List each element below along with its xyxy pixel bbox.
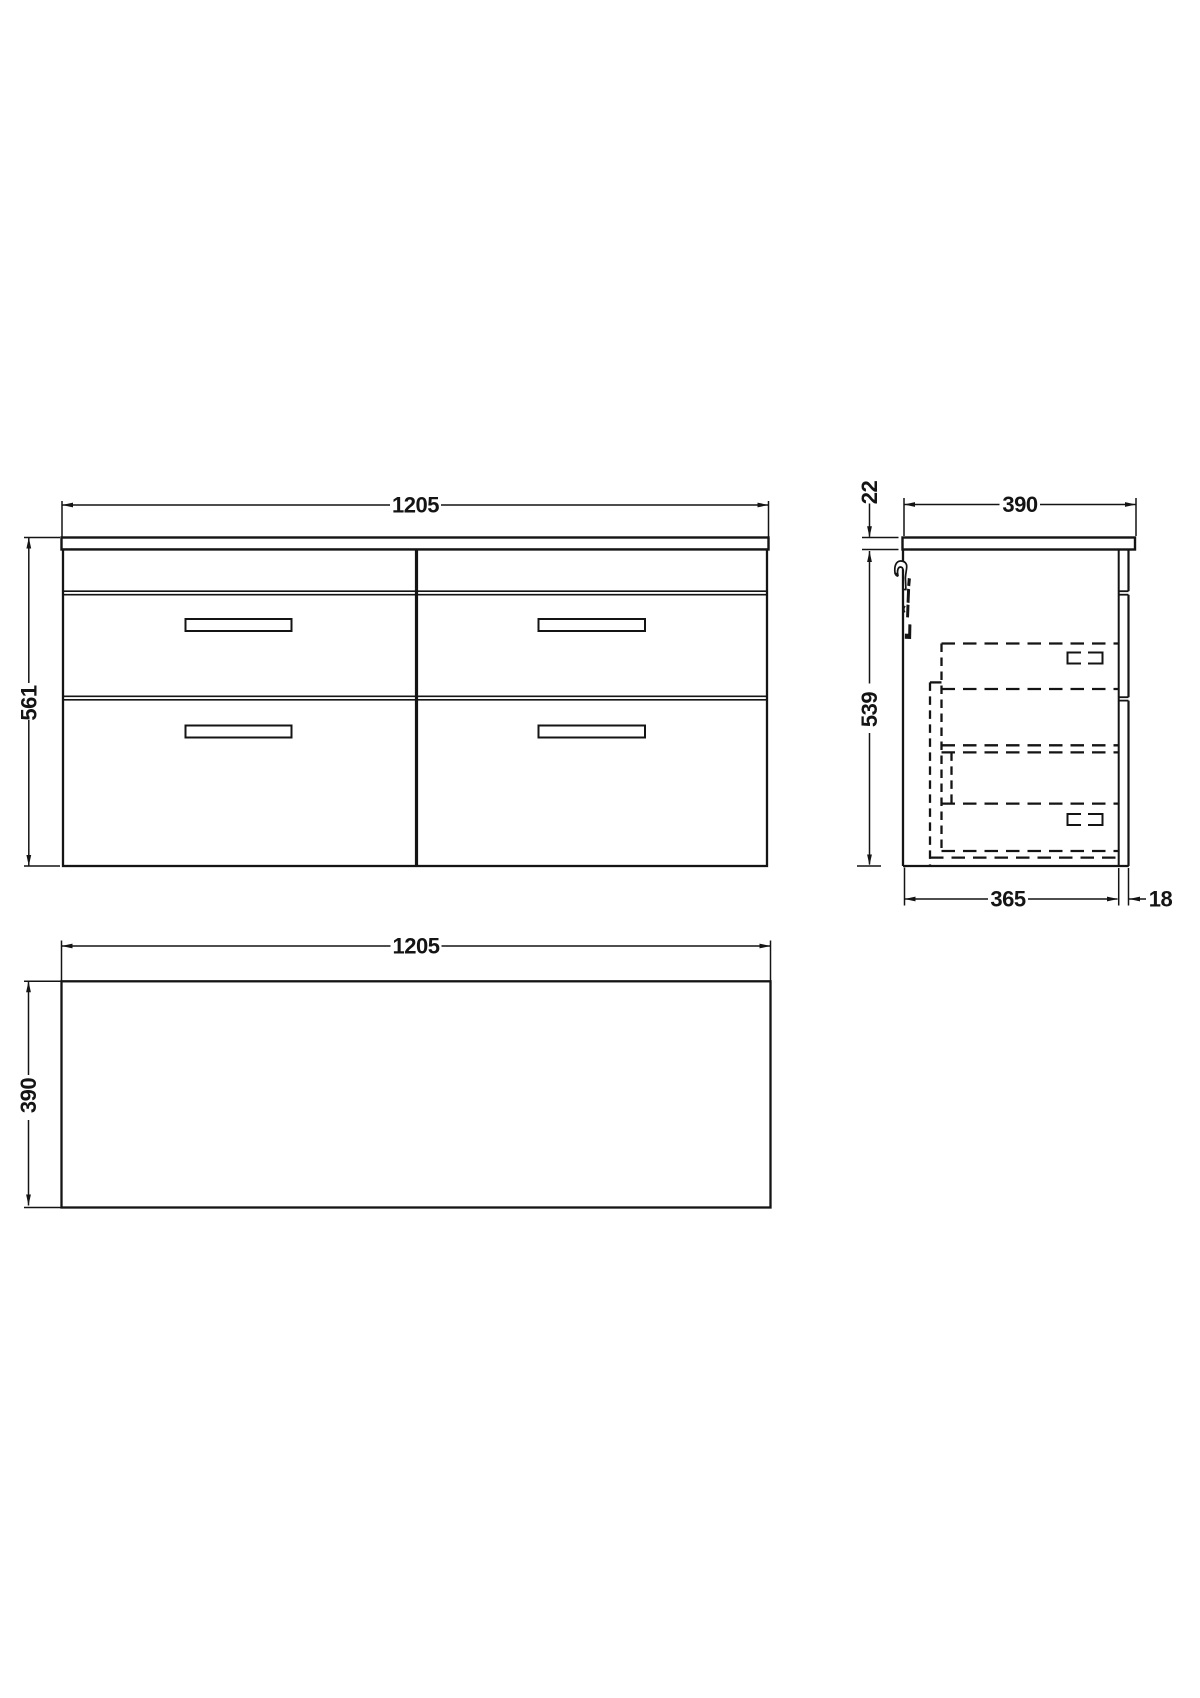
- svg-text:1205: 1205: [392, 493, 439, 518]
- svg-text:22: 22: [857, 481, 882, 505]
- svg-text:390: 390: [16, 1078, 41, 1113]
- svg-text:1205: 1205: [393, 934, 440, 959]
- svg-text:390: 390: [1002, 492, 1037, 517]
- svg-text:18: 18: [1149, 887, 1173, 912]
- svg-text:365: 365: [990, 887, 1025, 912]
- svg-text:539: 539: [857, 692, 882, 727]
- svg-text:561: 561: [16, 685, 41, 720]
